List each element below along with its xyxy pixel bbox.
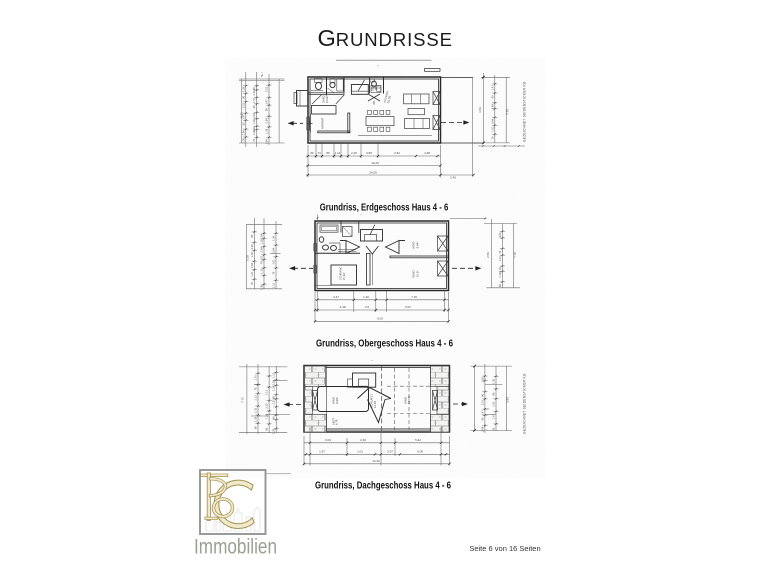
svg-text:Seite 6 von 16 Seiten: Seite 6 von 16 Seiten: [469, 544, 540, 553]
svg-text:Immobilien: Immobilien: [194, 535, 277, 558]
svg-text:GRUNDRISSE: GRUNDRISSE: [318, 25, 453, 51]
svg-text:Grundriss, Dachgeschoss Haus 4: Grundriss, Dachgeschoss Haus 4 - 6: [315, 481, 451, 492]
